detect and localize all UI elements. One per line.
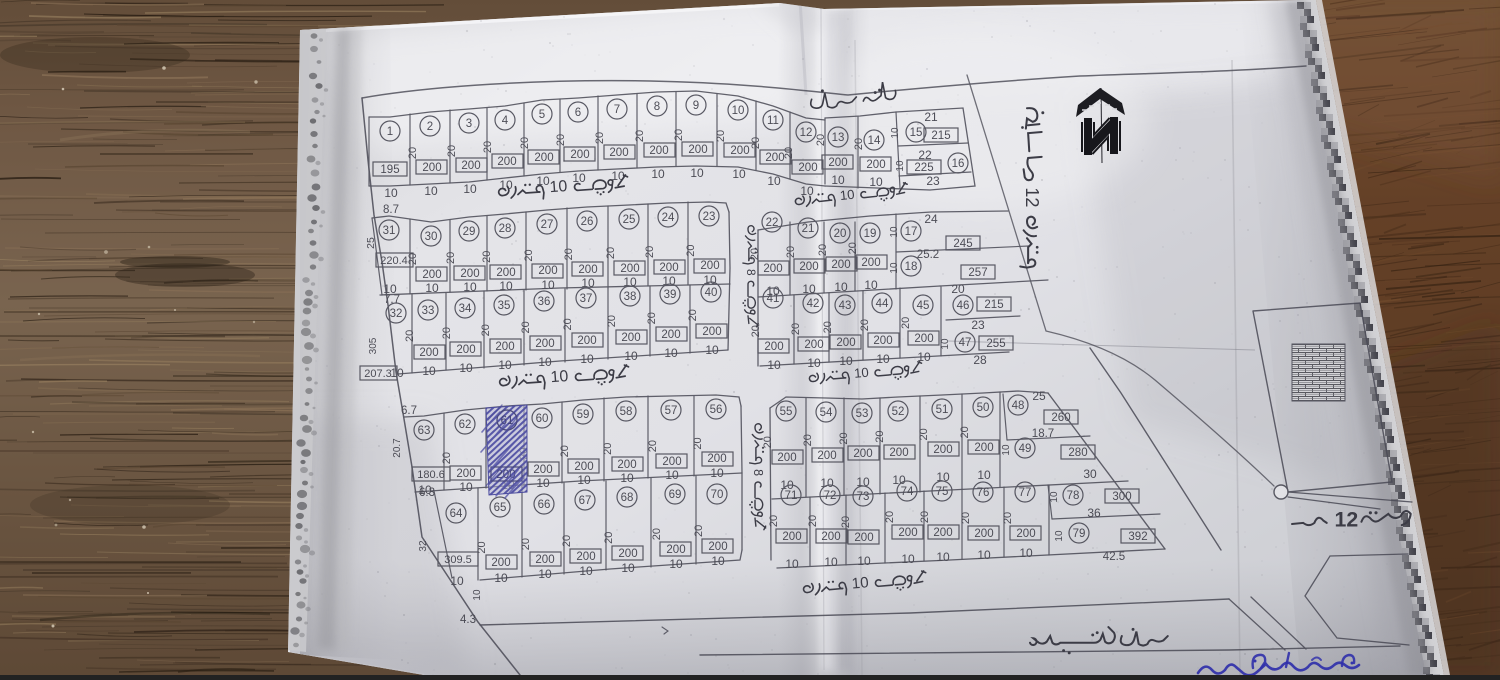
svg-text:20: 20 [563,248,575,260]
svg-text:20: 20 [692,437,704,449]
svg-text:10: 10 [621,561,635,575]
svg-text:10: 10 [977,548,991,562]
svg-text:20: 20 [482,141,494,153]
svg-text:70: 70 [711,489,724,501]
svg-text:10: 10 [711,554,725,568]
svg-text:53: 53 [856,408,869,420]
svg-text:220.4: 220.4 [380,255,408,267]
svg-text:10: 10 [889,262,900,274]
svg-text:10: 10 [851,574,869,592]
svg-text:50: 50 [977,402,990,414]
svg-text:10: 10 [839,187,855,203]
svg-text:200: 200 [460,268,479,280]
svg-text:3: 3 [466,118,472,130]
svg-text:200: 200 [661,329,680,341]
svg-text:73: 73 [857,491,870,503]
svg-text:10: 10 [538,355,552,369]
svg-text:10: 10 [665,468,679,482]
svg-text:20: 20 [838,432,850,444]
svg-text:20: 20 [523,249,535,261]
svg-text:10: 10 [824,555,838,569]
svg-text:24: 24 [924,212,938,226]
svg-text:10: 10 [977,468,991,482]
svg-text:16: 16 [952,158,965,170]
svg-text:200: 200 [730,145,749,157]
svg-text:20: 20 [559,445,571,457]
svg-text:200: 200 [620,263,639,275]
svg-text:20: 20 [605,247,617,259]
svg-text:18.7: 18.7 [1032,428,1054,440]
svg-text:20: 20 [884,511,896,523]
svg-text:32: 32 [390,308,403,320]
svg-text:200: 200 [533,464,552,476]
svg-text:245: 245 [953,238,972,250]
svg-text:20: 20 [480,324,492,336]
svg-text:215: 215 [931,130,950,142]
svg-text:10: 10 [577,473,591,487]
svg-text:10: 10 [579,564,593,578]
svg-text:200: 200 [577,335,596,347]
svg-text:6: 6 [575,107,581,119]
svg-text:255: 255 [986,338,1005,350]
svg-text:52: 52 [892,406,905,418]
svg-text:23: 23 [703,211,716,223]
svg-text:215: 215 [984,299,1003,311]
svg-text:10: 10 [472,589,483,601]
svg-text:10: 10 [889,226,900,238]
svg-text:20: 20 [822,321,834,333]
svg-text:26: 26 [581,216,594,228]
svg-text:64: 64 [450,508,463,520]
svg-text:20: 20 [647,440,659,452]
svg-text:10: 10 [732,105,745,117]
svg-text:11: 11 [767,115,779,127]
svg-text:20: 20 [1002,512,1014,524]
svg-text:7.7: 7.7 [384,294,400,306]
svg-text:10: 10 [895,160,906,172]
svg-text:200: 200 [609,147,628,159]
svg-text:200: 200 [782,531,801,543]
svg-text:47: 47 [959,337,972,349]
svg-text:20: 20 [951,282,965,296]
svg-text:10: 10 [869,175,883,189]
svg-text:20: 20 [561,535,573,547]
svg-text:260: 260 [1051,412,1070,424]
svg-text:4: 4 [502,115,509,127]
svg-text:10: 10 [494,571,508,585]
svg-text:33: 33 [422,305,435,317]
svg-text:20: 20 [693,525,705,537]
svg-text:20: 20 [785,246,797,258]
svg-text:30: 30 [425,231,438,243]
svg-text:10: 10 [450,574,464,588]
svg-text:200: 200 [764,341,783,353]
svg-text:10: 10 [703,273,717,287]
svg-text:75: 75 [936,486,949,498]
svg-text:200: 200 [821,531,840,543]
svg-text:43: 43 [839,300,852,312]
svg-text:10: 10 [425,281,439,295]
svg-text:8.7: 8.7 [383,204,399,216]
svg-text:72: 72 [824,490,837,502]
svg-text:200: 200 [853,448,872,460]
svg-text:20: 20 [555,134,567,146]
svg-text:10: 10 [705,343,719,357]
svg-text:200: 200 [659,262,678,274]
svg-text:20: 20 [606,315,618,327]
svg-text:200: 200 [576,551,595,563]
svg-text:200: 200 [763,263,782,275]
svg-text:19: 19 [864,228,877,240]
svg-text:10: 10 [857,554,871,568]
svg-text:200: 200 [861,257,880,269]
svg-text:8: 8 [654,101,660,113]
svg-text:200: 200 [765,152,784,164]
svg-text:18: 18 [905,261,918,273]
svg-text:305: 305 [368,337,379,354]
svg-text:10: 10 [690,166,704,180]
svg-text:35: 35 [498,300,511,312]
svg-text:78: 78 [1067,490,1080,502]
svg-text:74: 74 [901,486,914,498]
svg-text:6.3: 6.3 [419,487,435,499]
svg-text:10: 10 [549,178,568,196]
svg-text:28: 28 [499,223,512,235]
svg-text:51: 51 [936,404,949,416]
svg-text:200: 200 [688,144,707,156]
svg-text:1: 1 [387,126,393,138]
svg-text:10: 10 [839,354,853,368]
svg-text:67: 67 [579,495,592,507]
svg-text:7: 7 [614,104,620,116]
svg-text:200: 200 [798,162,817,174]
svg-text:20: 20 [594,132,606,144]
svg-text:20: 20 [520,321,532,333]
svg-text:20: 20 [834,228,847,240]
svg-text:36: 36 [538,296,551,308]
svg-text:10: 10 [624,349,638,363]
svg-text:20: 20 [840,516,852,528]
svg-text:10: 10 [424,184,438,198]
svg-text:20: 20 [602,443,614,455]
svg-text:24: 24 [662,212,675,224]
svg-text:200: 200 [570,149,589,161]
svg-text:10: 10 [463,280,477,294]
svg-text:200: 200 [1016,528,1035,540]
svg-text:392: 392 [1128,531,1147,543]
svg-text:200: 200 [456,468,475,480]
svg-text:200: 200 [496,267,515,279]
svg-text:20: 20 [918,428,930,440]
svg-text:34: 34 [459,303,472,315]
svg-text:20: 20 [853,138,865,150]
svg-text:200: 200 [831,259,850,271]
svg-text:10: 10 [620,471,634,485]
svg-text:200: 200 [497,156,516,168]
svg-text:42.5: 42.5 [1103,551,1125,563]
svg-text:10: 10 [498,358,512,372]
svg-text:21: 21 [924,110,938,124]
svg-text:36: 36 [1087,506,1101,520]
svg-text:200: 200 [866,159,885,171]
svg-text:25: 25 [1032,389,1046,403]
svg-text:195: 195 [380,164,399,176]
svg-text:20: 20 [445,252,457,264]
svg-text:71: 71 [785,490,798,502]
svg-text:20: 20 [715,130,727,142]
svg-text:22: 22 [766,217,779,229]
svg-text:200: 200 [700,260,719,272]
svg-text:10: 10 [1019,546,1033,560]
svg-text:200: 200 [617,459,636,471]
svg-text:45: 45 [917,300,930,312]
svg-text:20: 20 [685,244,697,256]
svg-text:25.2: 25.2 [917,249,939,261]
svg-text:20: 20 [603,532,615,544]
svg-text:10: 10 [384,186,398,200]
svg-text:8: 8 [751,469,765,476]
svg-text:20: 20 [651,528,663,540]
svg-text:10: 10 [834,280,848,294]
svg-text:23: 23 [971,318,985,332]
svg-text:200: 200 [889,447,908,459]
svg-text:2: 2 [427,121,433,133]
svg-text:10: 10 [807,356,821,370]
svg-text:14: 14 [868,135,881,147]
svg-text:20: 20 [847,242,859,254]
svg-text:10: 10 [890,127,901,139]
svg-text:40: 40 [705,287,718,299]
svg-text:200: 200 [707,453,726,465]
svg-text:10: 10 [664,346,678,360]
svg-text:20.7: 20.7 [392,438,403,458]
svg-text:25: 25 [365,237,377,249]
svg-text:20: 20 [783,147,795,159]
svg-text:200: 200 [666,544,685,556]
svg-text:200: 200 [422,162,441,174]
svg-text:56: 56 [710,404,723,416]
svg-text:309.5: 309.5 [444,554,472,566]
svg-text:10: 10 [785,557,799,571]
svg-text:10: 10 [940,338,951,350]
svg-text:10: 10 [459,361,473,375]
svg-text:57: 57 [665,405,678,417]
svg-text:20: 20 [874,430,886,442]
svg-text:12: 12 [1335,507,1359,531]
svg-text:20: 20 [441,327,453,339]
svg-text:58: 58 [620,406,633,418]
svg-text:77: 77 [1019,487,1032,499]
svg-text:66: 66 [538,499,551,511]
svg-text:41: 41 [767,293,780,305]
svg-text:10: 10 [864,278,878,292]
svg-text:10: 10 [732,167,746,181]
svg-text:10: 10 [1054,530,1065,542]
svg-text:200: 200 [817,450,836,462]
svg-text:200: 200 [898,527,917,539]
svg-text:200: 200 [974,528,993,540]
svg-text:280: 280 [1068,447,1087,459]
svg-text:20: 20 [404,330,416,342]
svg-text:10: 10 [767,358,781,372]
svg-text:10: 10 [463,182,477,196]
svg-text:20: 20 [441,452,453,464]
svg-text:63: 63 [418,425,431,437]
svg-text:8: 8 [744,269,758,276]
svg-text:200: 200 [578,264,597,276]
svg-text:20: 20 [790,323,802,335]
svg-text:30: 30 [1083,467,1097,481]
svg-text:10: 10 [499,279,513,293]
svg-text:20: 20 [646,312,658,324]
svg-text:20: 20 [407,147,419,159]
svg-text:200: 200 [974,442,993,454]
svg-text:257: 257 [968,267,987,279]
svg-text:200: 200 [708,541,727,553]
svg-text:20: 20 [673,129,685,141]
svg-text:200: 200 [618,548,637,560]
svg-text:10: 10 [1001,444,1012,456]
svg-text:200: 200 [538,265,557,277]
svg-text:200: 200 [854,532,873,544]
svg-text:42: 42 [807,298,820,310]
svg-text:10: 10 [580,352,594,366]
svg-text:200: 200 [828,157,847,169]
svg-text:200: 200 [495,341,514,353]
svg-text:200: 200 [535,338,554,350]
svg-text:10: 10 [901,552,915,566]
svg-text:20: 20 [687,309,699,321]
svg-text:200: 200 [621,332,640,344]
svg-text:10: 10 [459,480,473,494]
svg-text:207.3: 207.3 [364,368,392,380]
svg-text:200: 200 [914,333,933,345]
svg-text:200: 200 [422,269,441,281]
svg-text:79: 79 [1073,528,1086,540]
svg-text:69: 69 [669,489,682,501]
svg-text:20: 20 [960,512,972,524]
svg-text:200: 200 [649,145,668,157]
svg-text:76: 76 [977,487,990,499]
svg-text:20: 20 [644,246,656,258]
svg-text:37: 37 [580,293,593,305]
svg-text:48: 48 [1012,400,1025,412]
svg-text:200: 200 [534,152,553,164]
svg-text:49: 49 [1019,443,1032,455]
svg-text:200: 200 [662,456,681,468]
svg-text:200: 200 [804,339,823,351]
svg-text:44: 44 [876,298,889,310]
svg-text:20: 20 [520,538,532,550]
svg-text:65: 65 [494,502,507,514]
svg-text:20: 20 [919,511,931,523]
svg-text:46: 46 [957,300,970,312]
svg-text:13: 13 [832,132,845,144]
svg-text:20: 20 [481,251,493,263]
svg-text:20: 20 [407,253,419,265]
svg-text:54: 54 [820,407,833,419]
svg-text:300: 300 [1112,491,1131,503]
svg-text:32: 32 [418,540,429,552]
svg-text:5: 5 [539,109,545,121]
svg-text:20: 20 [817,244,829,256]
svg-text:9: 9 [693,100,699,112]
svg-text:200: 200 [702,326,721,338]
svg-text:38: 38 [624,291,637,303]
svg-text:12: 12 [800,127,813,139]
svg-text:180.6: 180.6 [417,469,445,481]
svg-text:17: 17 [905,226,918,238]
svg-text:27: 27 [541,219,554,231]
svg-text:15: 15 [910,127,923,139]
svg-text:10: 10 [651,167,665,181]
svg-text:25: 25 [623,214,636,226]
svg-text:200: 200 [461,160,480,172]
svg-text:10: 10 [1049,491,1060,503]
svg-text:10: 10 [669,557,683,571]
svg-text:200: 200 [777,452,796,464]
svg-text:20: 20 [802,434,814,446]
svg-text:225: 225 [914,162,933,174]
svg-text:20: 20 [762,436,774,448]
svg-text:21: 21 [802,223,815,235]
svg-text:200: 200 [933,527,952,539]
svg-text:20: 20 [519,137,531,149]
svg-text:60: 60 [536,413,549,425]
svg-text:200: 200 [799,261,818,273]
svg-text:20: 20 [446,145,458,157]
svg-text:4.3: 4.3 [460,614,476,626]
svg-text:23: 23 [926,174,940,188]
svg-text:10: 10 [422,364,436,378]
svg-text:59: 59 [577,409,590,421]
svg-text:200: 200 [456,344,475,356]
svg-text:20: 20 [807,515,819,527]
svg-text:10: 10 [876,352,890,366]
svg-text:20: 20 [815,134,827,146]
svg-text:10: 10 [710,466,724,480]
svg-text:31: 31 [383,225,396,237]
svg-text:20: 20 [768,515,780,527]
svg-text:20: 20 [959,426,971,438]
svg-text:200: 200 [574,461,593,473]
svg-text:20: 20 [476,541,488,553]
svg-text:10: 10 [767,174,781,188]
svg-text:10: 10 [541,278,555,292]
svg-text:20: 20 [634,130,646,142]
svg-text:68: 68 [621,492,634,504]
svg-text:20: 20 [562,318,574,330]
svg-text:10: 10 [550,368,569,386]
svg-text:39: 39 [664,289,677,301]
svg-text:200: 200 [873,335,892,347]
svg-text:20: 20 [900,317,912,329]
svg-text:10: 10 [538,567,552,581]
svg-text:12: 12 [1022,187,1042,207]
svg-text:10: 10 [831,173,845,187]
svg-text:20: 20 [859,319,871,331]
svg-text:29: 29 [463,226,476,238]
svg-text:10: 10 [936,550,950,564]
svg-text:10: 10 [536,476,550,490]
svg-text:200: 200 [933,444,952,456]
svg-text:200: 200 [491,557,510,569]
svg-text:200: 200 [535,554,554,566]
svg-text:200: 200 [419,347,438,359]
svg-text:62: 62 [459,419,472,431]
svg-text:20: 20 [750,137,762,149]
svg-text:200: 200 [836,337,855,349]
